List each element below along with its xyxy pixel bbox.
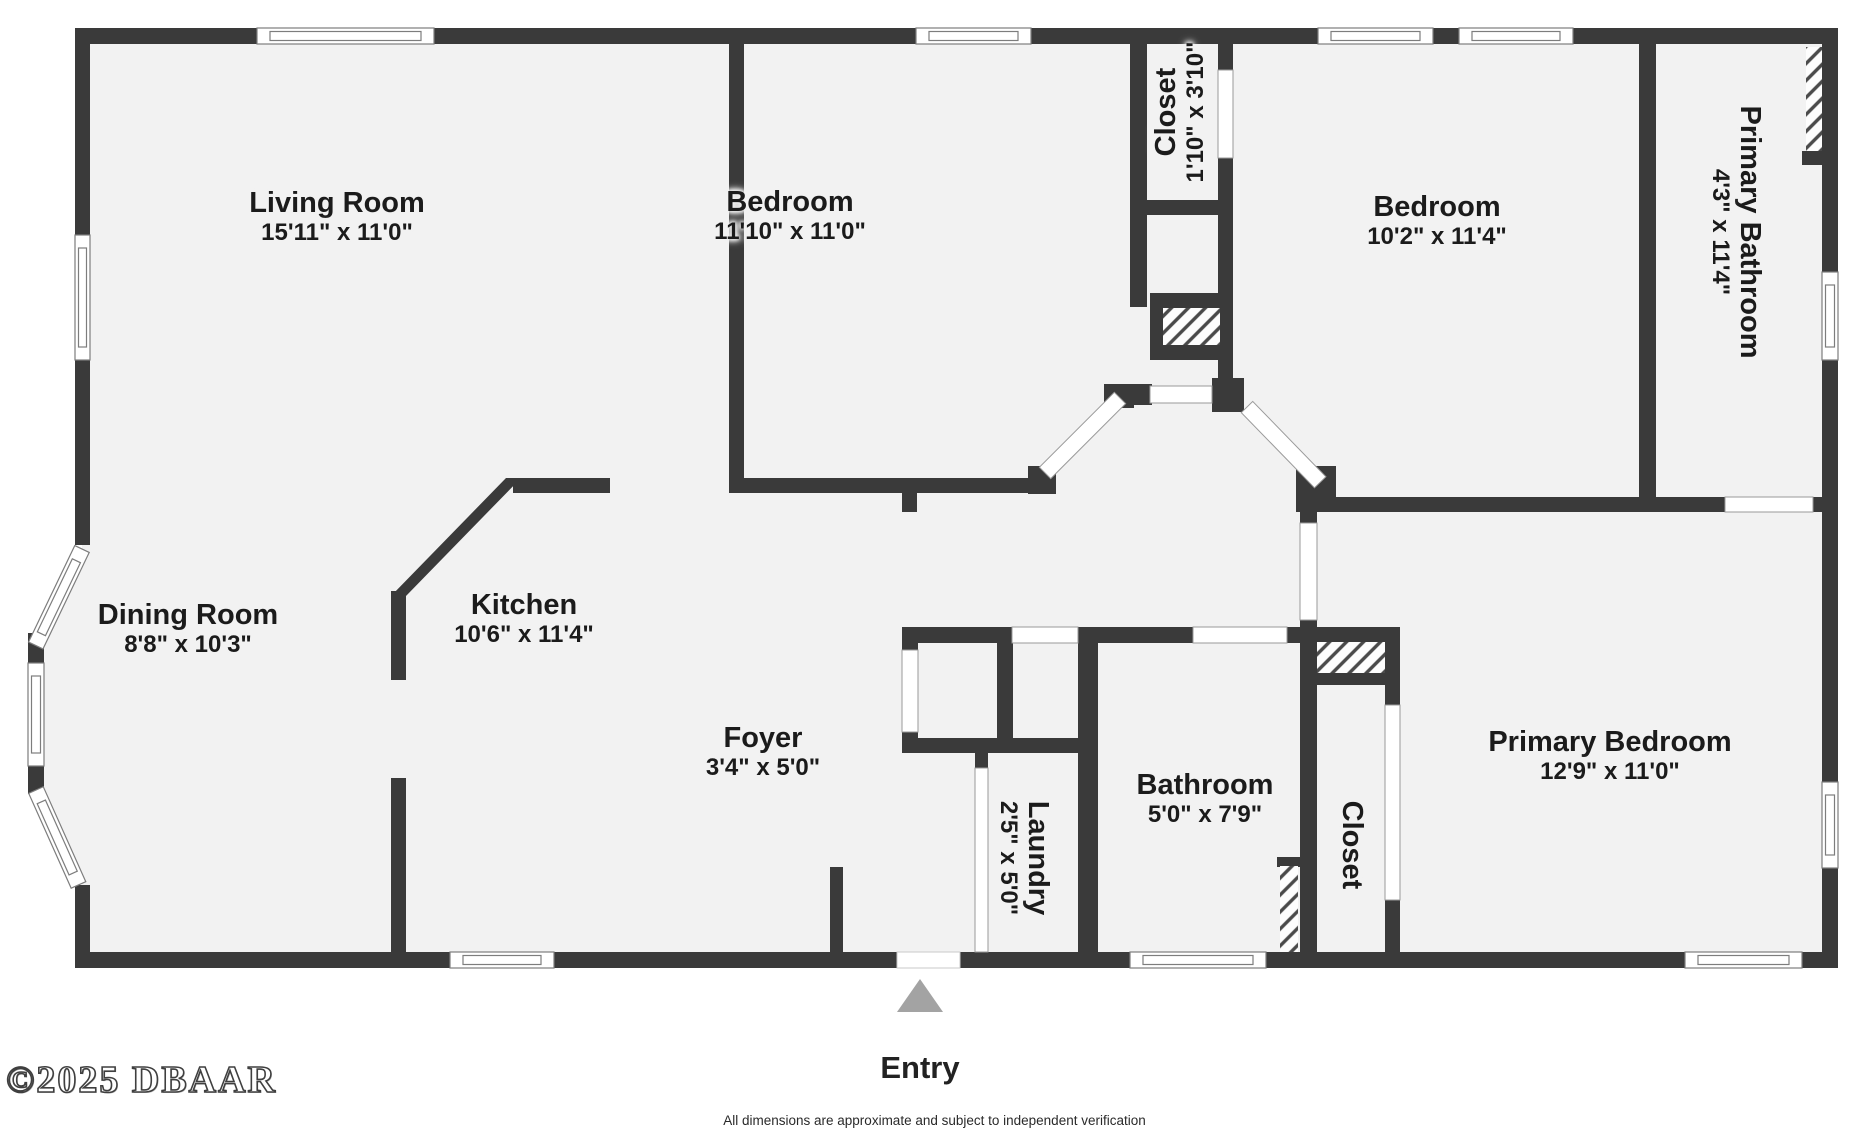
- entry-arrow: [897, 979, 943, 1012]
- floor-plan-page: { "rooms": { "living_room": {"name": "Li…: [0, 0, 1869, 1132]
- floor-plan-svg: [0, 0, 1869, 1132]
- room-dims: 2'5" x 5'0": [994, 801, 1022, 915]
- room-label-foyer: Foyer 3'4" x 5'0": [706, 722, 820, 782]
- primary-bathroom-shower-hatch: [1806, 47, 1822, 151]
- room-dims: 5'0" x 7'9": [1137, 801, 1274, 829]
- room-name: Bedroom: [1367, 191, 1507, 223]
- disclaimer-text: All dimensions are approximate and subje…: [0, 1113, 1869, 1128]
- room-name: Foyer: [706, 722, 820, 754]
- room-label-primary-bedroom: Primary Bedroom 12'9" x 11'0": [1488, 726, 1731, 786]
- door-hall-nook: [1150, 386, 1212, 403]
- door-hall-to-bath-area: [1300, 523, 1317, 620]
- room-name: Kitchen: [454, 589, 594, 621]
- window-primary-bathroom-right: [1822, 272, 1838, 360]
- room-label-bedroom-top: Bedroom 11'10" x 11'0": [714, 186, 866, 246]
- room-label-closet-top: Closet 1'10" x 3'10": [1150, 42, 1210, 183]
- door-primary-bedroom: [1725, 497, 1813, 512]
- room-name: Primary Bedroom: [1488, 726, 1731, 758]
- room-label-bedroom-right: Bedroom 10'2" x 11'4": [1367, 191, 1507, 251]
- window-bay-center: [28, 663, 44, 766]
- room-name: Bathroom: [1137, 769, 1274, 801]
- entry-label: Entry: [880, 1050, 959, 1086]
- room-name: Closet: [1150, 42, 1182, 183]
- door-kitchen-closet: [902, 650, 918, 732]
- room-name: Living Room: [249, 187, 425, 219]
- opening-foyer-laundry: [975, 768, 988, 952]
- window-living-top: [257, 28, 434, 44]
- room-label-dining-room: Dining Room 8'8" x 10'3": [98, 599, 278, 659]
- room-dims: 15'11" x 11'0": [249, 219, 425, 247]
- closet-pocket-door-hatch: [1317, 642, 1385, 673]
- room-name: Laundry: [1022, 801, 1054, 915]
- room-dims: 12'9" x 11'0": [1488, 758, 1731, 786]
- hall-utility-hatch: [1163, 308, 1220, 345]
- door-bathroom: [1193, 627, 1287, 643]
- room-name: Primary Bathroom: [1734, 105, 1766, 358]
- window-kitchen-bottom: [450, 952, 554, 968]
- room-dims: 10'2" x 11'4": [1367, 223, 1507, 251]
- room-name: Closet: [1336, 801, 1368, 890]
- door-primary-closet: [1385, 705, 1400, 900]
- window-bedroom2-top-a: [1318, 28, 1433, 44]
- room-dims: 1'10" x 3'10": [1182, 42, 1210, 183]
- window-living-left: [75, 235, 90, 360]
- room-label-living-room: Living Room 15'11" x 11'0": [249, 187, 425, 247]
- room-label-primary-bathroom: Primary Bathroom 4'3" x 11'4": [1706, 105, 1766, 358]
- room-name: Bedroom: [714, 186, 866, 218]
- window-bathroom-bottom: [1130, 952, 1266, 968]
- room-dims: 8'8" x 10'3": [98, 631, 278, 659]
- room-label-bathroom: Bathroom 5'0" x 7'9": [1137, 769, 1274, 829]
- room-dims: 4'3" x 11'4": [1706, 105, 1734, 358]
- door-hall-closet: [1012, 627, 1078, 643]
- window-bedroom2-top-b: [1459, 28, 1573, 44]
- room-name: Dining Room: [98, 599, 278, 631]
- copyright-text: ©2025 DBAAR: [6, 1058, 277, 1102]
- room-label-laundry: Laundry 2'5" x 5'0": [994, 801, 1054, 915]
- room-label-kitchen: Kitchen 10'6" x 11'4": [454, 589, 594, 649]
- window-bedroom-top: [916, 28, 1031, 44]
- room-label-closet-primary: Closet: [1336, 801, 1368, 890]
- window-primary-bedroom-right: [1822, 782, 1838, 868]
- window-primary-bedroom-bottom: [1685, 952, 1802, 968]
- bathroom-pocket-door-hatch: [1280, 866, 1298, 952]
- entry-door-opening: [897, 952, 960, 968]
- room-dims: 11'10" x 11'0": [714, 218, 866, 246]
- room-dims: 3'4" x 5'0": [706, 754, 820, 782]
- door-top-closet: [1218, 70, 1233, 158]
- room-dims: 10'6" x 11'4": [454, 621, 594, 649]
